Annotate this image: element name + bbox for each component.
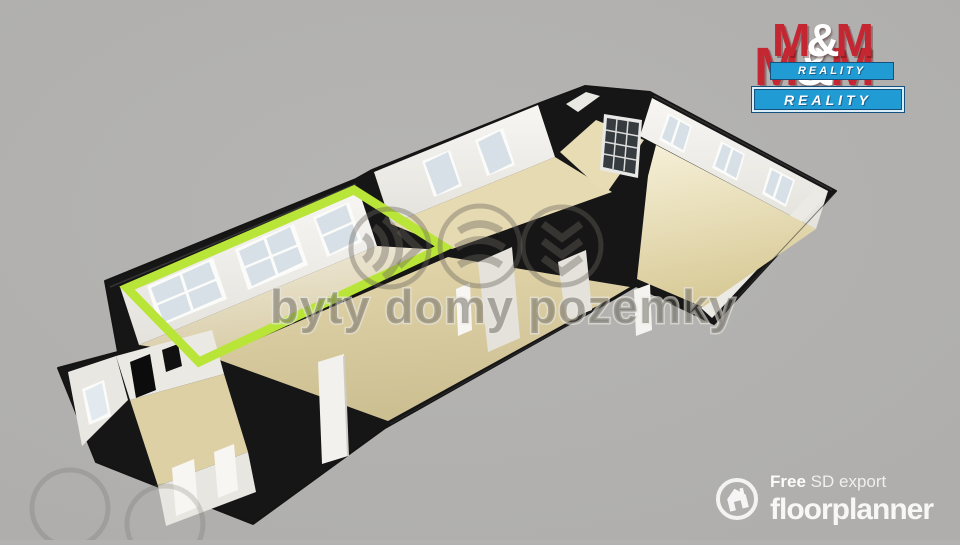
house-icon xyxy=(720,482,754,516)
agency-tagline-front: REALITY xyxy=(752,87,904,112)
agency-letter: M xyxy=(836,14,870,66)
export-free-label: Free xyxy=(770,472,806,491)
watermark-text: byty domy pozemky xyxy=(270,280,736,333)
export-type-label: Free SD export xyxy=(770,472,933,492)
agency-letter: M xyxy=(772,14,806,66)
export-sd-label: SD export xyxy=(811,472,887,491)
exporter-brand: floorplanner xyxy=(770,493,933,527)
agency-name-back: M&M xyxy=(772,17,870,63)
exporter-text: Free SD export floorplanner xyxy=(770,472,933,527)
screenshot-root: { "scene": { "background_color": "#b3b2b… xyxy=(0,0,960,540)
door xyxy=(214,444,238,498)
entrance-glass-door xyxy=(600,114,642,178)
agency-logo: M&M M&M REALITY REALITY xyxy=(752,16,906,112)
agency-ampersand: & xyxy=(806,14,835,66)
tall-door xyxy=(318,354,348,464)
exporter-badge: Free SD export floorplanner xyxy=(710,470,954,532)
agency-tagline-back: REALITY xyxy=(770,62,894,80)
